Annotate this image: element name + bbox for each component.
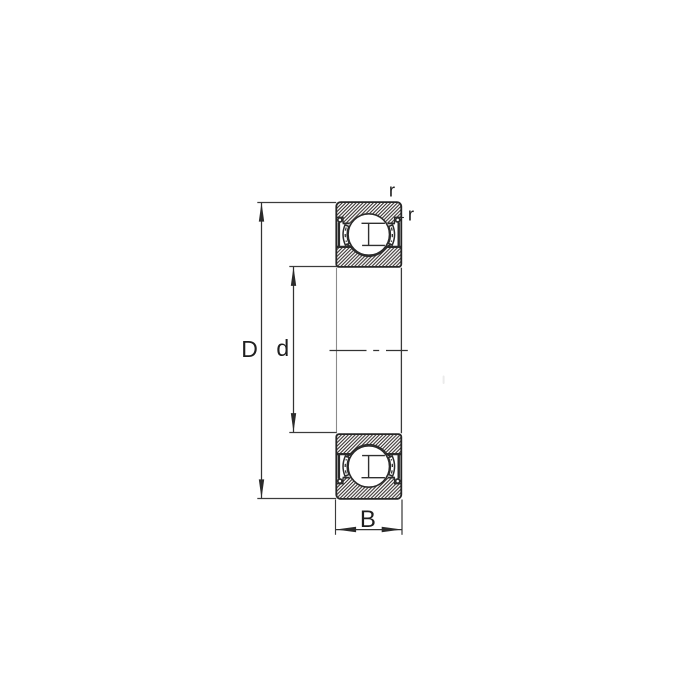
svg-text:r: r [389,180,395,201]
svg-text:r: r [408,204,414,225]
svg-text:D: D [241,336,258,362]
svg-text:B: B [360,506,376,533]
svg-text:d: d [276,335,289,361]
